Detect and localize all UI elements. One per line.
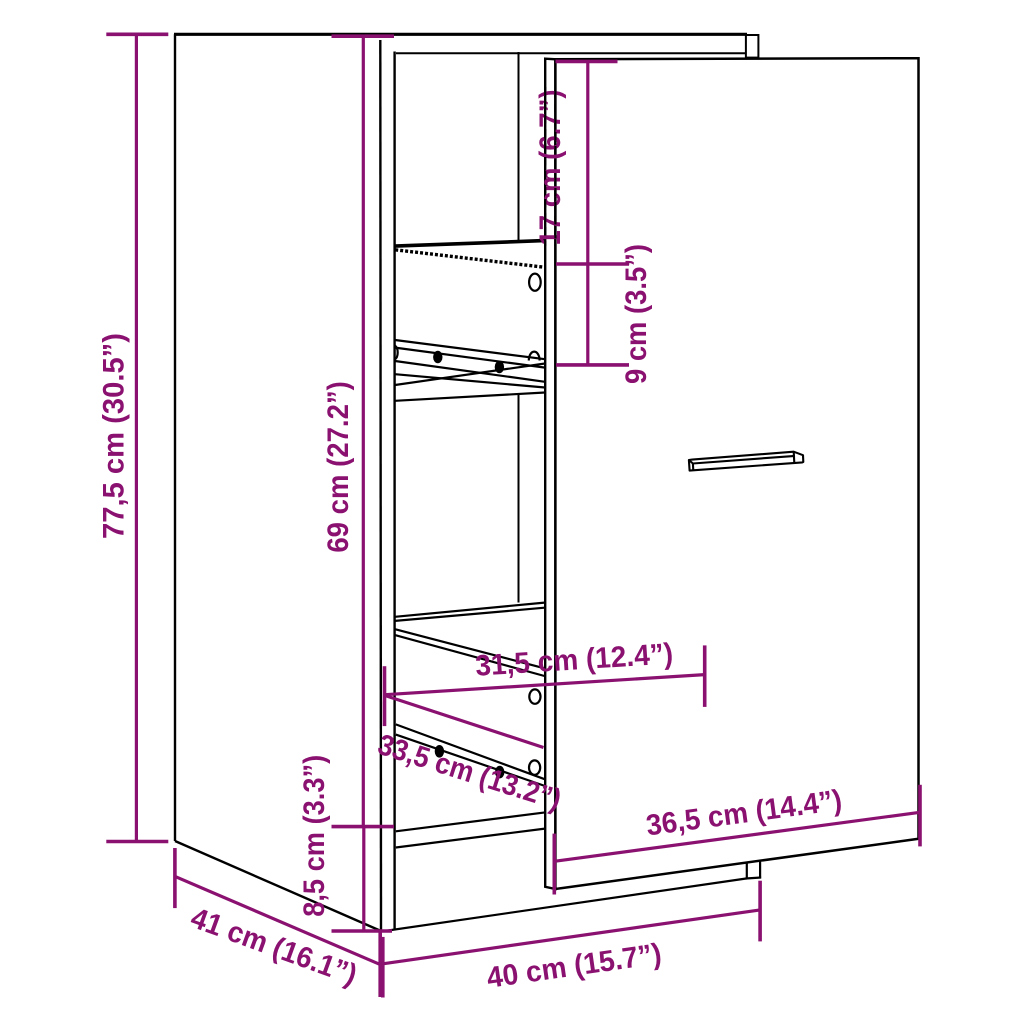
svg-text:17 cm (6.7”): 17 cm (6.7”): [534, 90, 567, 246]
svg-text:77,5 cm (30.5”): 77,5 cm (30.5”): [98, 333, 131, 539]
svg-text:9 cm (3.5”): 9 cm (3.5”): [620, 244, 653, 384]
svg-text:69 cm (27.2”): 69 cm (27.2”): [322, 381, 355, 553]
svg-text:8,5 cm (3.3”): 8,5 cm (3.3”): [298, 755, 331, 917]
